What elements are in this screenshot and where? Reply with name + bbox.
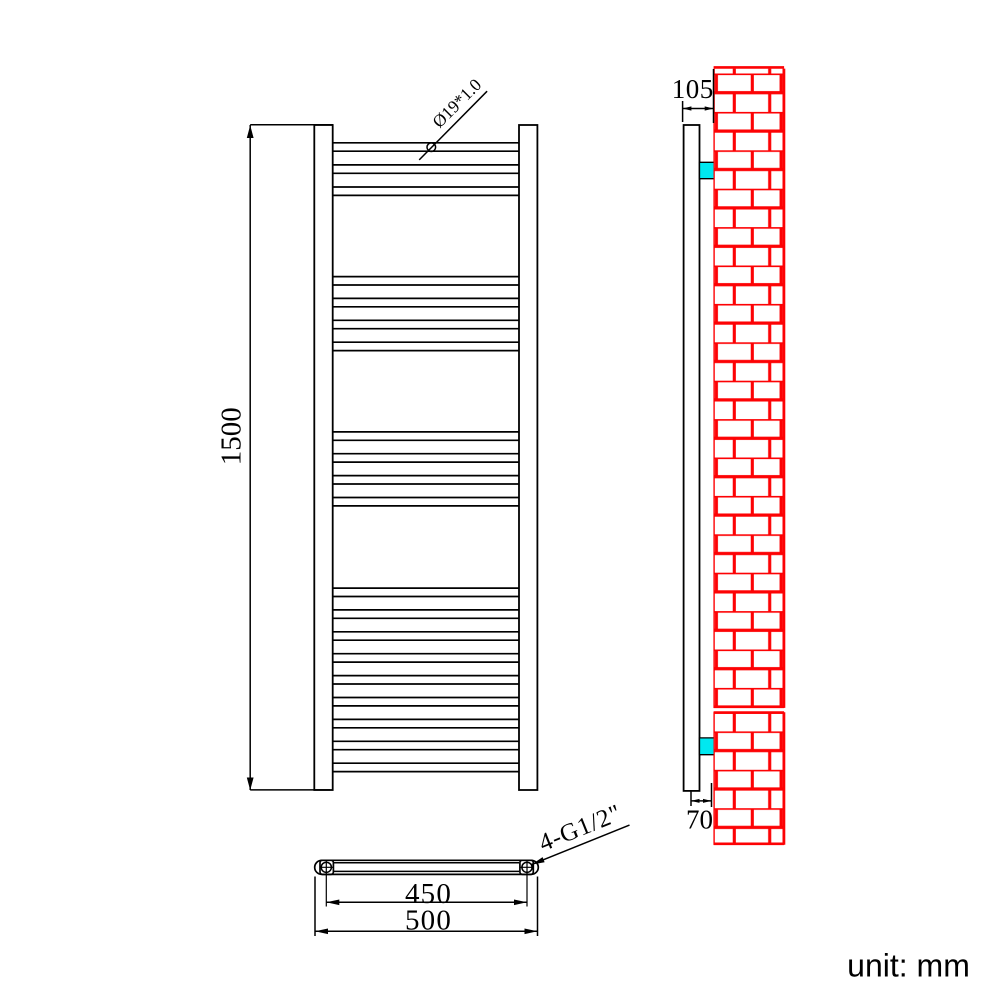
svg-text:70: 70 xyxy=(686,804,713,834)
svg-text:105: 105 xyxy=(672,74,714,104)
svg-text:1500: 1500 xyxy=(216,407,248,465)
svg-text:500: 500 xyxy=(405,905,452,937)
svg-text:unit: mm: unit: mm xyxy=(847,948,970,984)
